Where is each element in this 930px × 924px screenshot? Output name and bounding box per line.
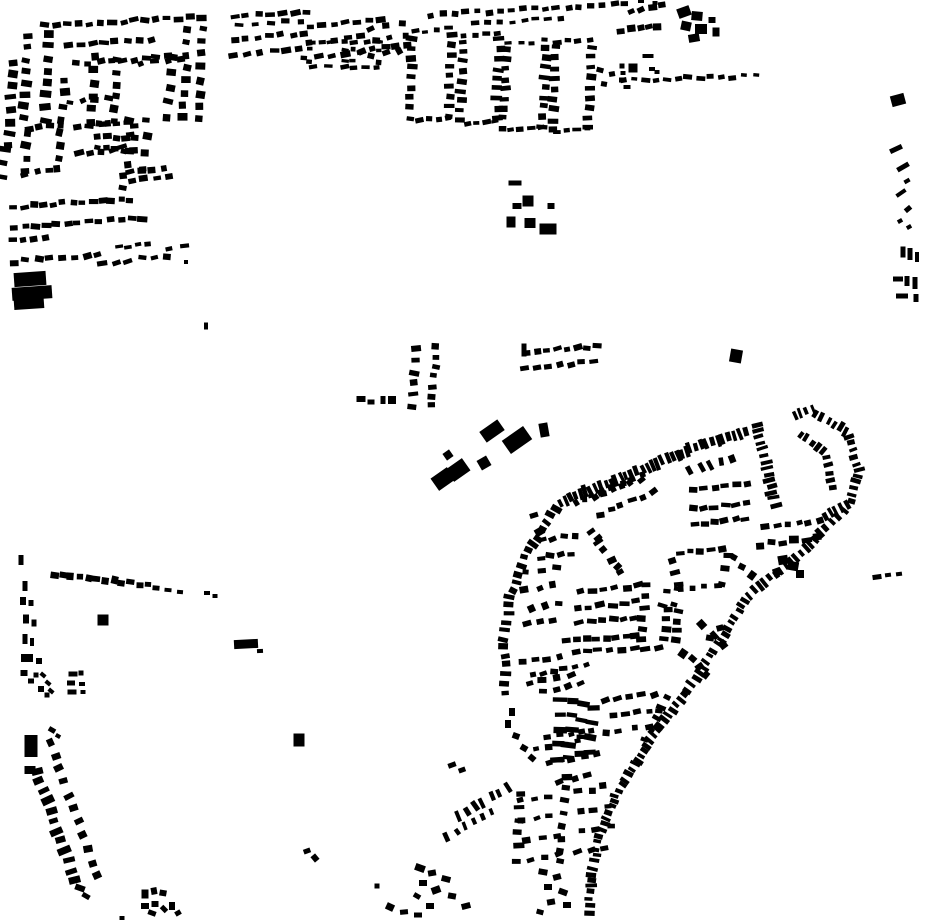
building bbox=[564, 346, 571, 352]
building bbox=[531, 657, 539, 662]
building bbox=[552, 564, 561, 570]
building bbox=[709, 436, 716, 446]
building bbox=[573, 637, 581, 643]
building bbox=[502, 426, 532, 454]
building bbox=[243, 51, 252, 58]
building bbox=[727, 619, 735, 626]
building bbox=[547, 898, 556, 905]
building bbox=[520, 365, 529, 371]
building bbox=[596, 512, 605, 519]
building bbox=[153, 175, 161, 180]
building bbox=[446, 72, 453, 77]
building bbox=[81, 892, 90, 900]
building bbox=[609, 712, 617, 718]
building bbox=[39, 103, 51, 111]
building bbox=[66, 572, 74, 580]
building bbox=[670, 601, 678, 607]
building bbox=[638, 0, 644, 3]
building bbox=[144, 241, 151, 246]
building bbox=[897, 218, 903, 224]
building bbox=[691, 522, 700, 527]
building bbox=[118, 185, 127, 191]
building bbox=[508, 8, 515, 12]
building bbox=[45, 693, 50, 698]
building bbox=[551, 54, 559, 60]
building bbox=[426, 116, 432, 121]
building bbox=[593, 647, 602, 652]
building bbox=[849, 454, 859, 461]
building bbox=[709, 17, 716, 23]
building bbox=[235, 23, 244, 27]
building bbox=[57, 845, 72, 857]
building bbox=[577, 359, 585, 364]
building bbox=[627, 24, 636, 32]
building bbox=[130, 123, 139, 128]
building bbox=[854, 466, 866, 473]
building bbox=[21, 80, 33, 88]
building bbox=[583, 345, 591, 351]
building bbox=[455, 117, 465, 122]
building bbox=[34, 123, 42, 131]
building bbox=[598, 545, 607, 554]
building bbox=[609, 616, 619, 623]
building bbox=[620, 480, 627, 487]
building bbox=[479, 419, 504, 442]
building bbox=[676, 5, 692, 19]
building bbox=[501, 653, 510, 659]
building bbox=[448, 892, 457, 899]
building bbox=[21, 670, 28, 676]
building bbox=[317, 22, 327, 28]
building bbox=[427, 13, 434, 20]
building bbox=[302, 10, 310, 15]
building bbox=[673, 619, 681, 625]
building bbox=[736, 428, 744, 441]
building bbox=[621, 1, 628, 6]
building bbox=[99, 40, 110, 45]
building bbox=[196, 77, 205, 86]
building bbox=[561, 785, 570, 791]
building bbox=[10, 225, 18, 231]
building bbox=[94, 133, 101, 140]
building bbox=[609, 71, 616, 77]
building bbox=[147, 909, 156, 916]
building bbox=[113, 82, 121, 89]
building bbox=[519, 659, 527, 665]
building bbox=[562, 774, 573, 781]
building bbox=[135, 242, 142, 247]
building bbox=[461, 8, 469, 14]
building bbox=[697, 462, 706, 473]
building bbox=[25, 766, 36, 774]
building bbox=[501, 77, 509, 83]
building bbox=[87, 105, 96, 112]
building bbox=[672, 628, 682, 633]
building bbox=[97, 20, 104, 27]
building bbox=[522, 569, 528, 574]
building bbox=[23, 33, 33, 39]
building bbox=[762, 476, 775, 484]
building bbox=[91, 576, 100, 583]
building bbox=[629, 615, 637, 621]
building bbox=[129, 16, 139, 23]
building bbox=[606, 647, 614, 653]
building bbox=[501, 66, 509, 71]
building bbox=[504, 611, 515, 615]
building bbox=[611, 0, 620, 6]
building bbox=[847, 492, 857, 498]
building bbox=[382, 22, 390, 29]
building bbox=[49, 202, 57, 208]
building bbox=[908, 248, 913, 260]
building bbox=[138, 175, 148, 182]
building bbox=[785, 522, 791, 528]
building bbox=[612, 695, 622, 702]
building bbox=[290, 9, 301, 17]
building bbox=[17, 101, 29, 110]
building bbox=[463, 806, 472, 816]
building bbox=[522, 344, 527, 357]
building bbox=[181, 76, 191, 83]
building bbox=[431, 885, 442, 895]
building bbox=[676, 551, 685, 556]
building bbox=[707, 74, 714, 79]
building bbox=[509, 21, 515, 25]
building bbox=[625, 693, 633, 699]
building bbox=[559, 666, 568, 671]
building bbox=[388, 396, 396, 404]
building bbox=[331, 22, 338, 27]
building bbox=[627, 8, 635, 15]
building bbox=[599, 782, 607, 789]
building bbox=[567, 361, 576, 368]
building bbox=[0, 174, 8, 180]
building bbox=[662, 616, 670, 621]
building bbox=[614, 728, 622, 734]
building bbox=[350, 65, 358, 70]
building bbox=[428, 384, 437, 390]
building bbox=[128, 178, 137, 185]
building bbox=[565, 5, 573, 12]
building bbox=[41, 234, 49, 241]
building bbox=[602, 729, 610, 736]
building bbox=[142, 132, 152, 141]
building bbox=[583, 662, 590, 668]
building bbox=[640, 646, 651, 653]
building bbox=[30, 223, 40, 230]
building bbox=[578, 728, 586, 734]
building bbox=[544, 884, 552, 890]
building bbox=[119, 172, 127, 179]
building bbox=[653, 78, 660, 83]
building bbox=[529, 512, 539, 519]
building bbox=[86, 150, 94, 157]
building bbox=[141, 903, 149, 909]
building bbox=[30, 638, 34, 646]
building bbox=[369, 45, 376, 52]
building bbox=[913, 277, 918, 289]
building bbox=[531, 17, 539, 21]
building bbox=[526, 680, 534, 687]
building bbox=[770, 502, 783, 510]
building bbox=[596, 67, 604, 74]
building bbox=[77, 830, 88, 840]
building bbox=[566, 712, 577, 718]
building bbox=[663, 589, 671, 594]
building bbox=[163, 97, 174, 105]
building bbox=[896, 572, 902, 577]
building bbox=[526, 857, 534, 863]
building bbox=[641, 593, 649, 599]
building bbox=[548, 119, 559, 124]
building bbox=[51, 752, 61, 761]
building bbox=[459, 68, 467, 75]
building bbox=[540, 103, 548, 109]
building bbox=[527, 604, 536, 614]
building bbox=[179, 101, 186, 108]
building bbox=[493, 36, 505, 41]
building bbox=[454, 89, 466, 95]
building bbox=[548, 105, 559, 112]
building bbox=[503, 601, 513, 607]
building bbox=[20, 597, 26, 605]
building bbox=[113, 121, 121, 126]
building bbox=[904, 205, 913, 213]
building bbox=[447, 52, 457, 58]
building bbox=[119, 197, 125, 202]
building bbox=[85, 22, 93, 28]
building bbox=[547, 96, 557, 103]
building bbox=[584, 126, 590, 130]
building bbox=[40, 794, 55, 806]
building bbox=[588, 807, 597, 813]
building bbox=[400, 909, 408, 915]
building bbox=[533, 815, 541, 821]
building bbox=[300, 56, 307, 61]
building bbox=[455, 108, 464, 112]
building bbox=[29, 236, 38, 243]
building bbox=[671, 636, 681, 643]
building bbox=[787, 561, 799, 572]
building bbox=[458, 766, 466, 773]
building bbox=[572, 533, 579, 540]
building bbox=[107, 20, 117, 26]
building bbox=[646, 709, 652, 714]
building bbox=[587, 846, 596, 854]
building bbox=[177, 113, 187, 121]
building bbox=[741, 73, 747, 77]
building bbox=[519, 586, 529, 594]
building bbox=[95, 120, 102, 127]
building bbox=[163, 114, 171, 122]
building bbox=[5, 119, 15, 127]
building bbox=[427, 394, 435, 400]
building bbox=[407, 404, 416, 410]
building bbox=[52, 22, 61, 29]
building bbox=[536, 585, 544, 592]
building bbox=[93, 251, 102, 258]
building bbox=[73, 123, 82, 130]
building bbox=[502, 660, 511, 667]
building bbox=[177, 590, 183, 595]
building bbox=[718, 545, 727, 553]
building bbox=[184, 260, 188, 264]
building bbox=[174, 909, 182, 916]
building bbox=[473, 121, 479, 125]
building bbox=[204, 323, 208, 330]
building bbox=[691, 11, 703, 21]
building bbox=[142, 117, 150, 122]
building bbox=[589, 857, 600, 863]
building bbox=[444, 84, 454, 89]
building bbox=[376, 49, 381, 53]
building bbox=[753, 73, 759, 77]
building bbox=[68, 690, 77, 695]
building bbox=[19, 555, 24, 565]
building bbox=[21, 68, 30, 75]
building bbox=[566, 671, 576, 679]
building bbox=[267, 21, 275, 26]
building bbox=[520, 554, 528, 560]
building bbox=[106, 197, 115, 204]
building bbox=[608, 506, 616, 512]
building bbox=[43, 55, 53, 63]
building bbox=[586, 65, 595, 70]
building bbox=[607, 824, 614, 829]
building bbox=[571, 775, 579, 783]
building bbox=[560, 797, 570, 804]
building bbox=[107, 216, 115, 223]
building bbox=[690, 586, 696, 591]
building bbox=[241, 13, 249, 19]
building bbox=[558, 836, 566, 842]
building bbox=[352, 20, 361, 25]
building bbox=[513, 571, 523, 579]
building bbox=[444, 104, 455, 108]
building bbox=[97, 260, 108, 267]
building bbox=[592, 343, 601, 349]
building bbox=[797, 549, 805, 557]
building bbox=[25, 735, 38, 757]
building bbox=[627, 496, 637, 503]
building bbox=[885, 573, 891, 578]
building bbox=[36, 658, 42, 664]
building bbox=[872, 574, 882, 580]
building bbox=[69, 672, 78, 677]
building bbox=[375, 884, 380, 889]
building bbox=[760, 459, 773, 465]
building bbox=[915, 252, 919, 262]
building bbox=[653, 23, 662, 30]
building bbox=[118, 217, 125, 223]
building bbox=[732, 481, 741, 487]
building bbox=[180, 243, 189, 248]
building bbox=[295, 45, 303, 52]
building bbox=[639, 494, 647, 502]
building bbox=[53, 763, 64, 773]
building bbox=[695, 24, 707, 34]
building bbox=[548, 203, 555, 209]
building bbox=[89, 199, 99, 204]
building bbox=[8, 59, 17, 66]
building bbox=[544, 364, 552, 370]
building bbox=[228, 52, 238, 59]
building bbox=[60, 88, 71, 96]
building bbox=[585, 104, 595, 111]
building bbox=[63, 21, 72, 26]
building bbox=[150, 887, 157, 895]
building bbox=[778, 540, 787, 546]
building bbox=[40, 21, 50, 28]
building bbox=[145, 582, 152, 587]
building bbox=[829, 485, 837, 491]
building bbox=[587, 866, 599, 872]
building bbox=[73, 220, 80, 225]
building bbox=[542, 518, 552, 527]
building bbox=[124, 245, 132, 250]
building bbox=[553, 686, 561, 693]
building bbox=[796, 570, 804, 578]
building bbox=[619, 616, 627, 622]
building bbox=[498, 643, 508, 650]
building bbox=[565, 38, 572, 42]
building bbox=[294, 734, 305, 747]
building bbox=[55, 155, 63, 162]
building bbox=[126, 198, 133, 204]
building bbox=[410, 379, 418, 386]
building bbox=[281, 18, 289, 23]
building bbox=[488, 808, 494, 816]
building bbox=[687, 549, 693, 554]
building bbox=[731, 430, 737, 441]
building bbox=[440, 10, 448, 17]
building bbox=[58, 199, 65, 205]
building bbox=[74, 817, 84, 826]
building bbox=[39, 90, 51, 98]
building bbox=[63, 42, 73, 49]
building bbox=[538, 75, 550, 81]
building bbox=[538, 113, 546, 120]
building bbox=[609, 793, 618, 799]
building bbox=[310, 853, 319, 862]
building bbox=[755, 441, 765, 446]
building bbox=[163, 253, 171, 260]
building bbox=[70, 200, 77, 206]
building bbox=[366, 25, 375, 33]
building bbox=[826, 417, 833, 425]
building bbox=[165, 246, 173, 252]
building bbox=[81, 690, 86, 694]
building bbox=[512, 859, 521, 864]
building bbox=[454, 828, 461, 836]
building bbox=[600, 696, 610, 704]
building bbox=[587, 618, 597, 624]
building bbox=[611, 634, 620, 641]
building bbox=[545, 744, 553, 751]
building bbox=[624, 85, 631, 89]
building bbox=[495, 789, 502, 798]
building bbox=[574, 605, 582, 612]
building bbox=[518, 41, 524, 44]
building bbox=[419, 880, 427, 886]
building bbox=[50, 572, 59, 580]
building bbox=[560, 811, 568, 816]
building bbox=[447, 761, 456, 768]
building bbox=[740, 517, 749, 522]
building bbox=[630, 632, 640, 639]
building bbox=[32, 776, 44, 786]
building bbox=[422, 30, 428, 34]
